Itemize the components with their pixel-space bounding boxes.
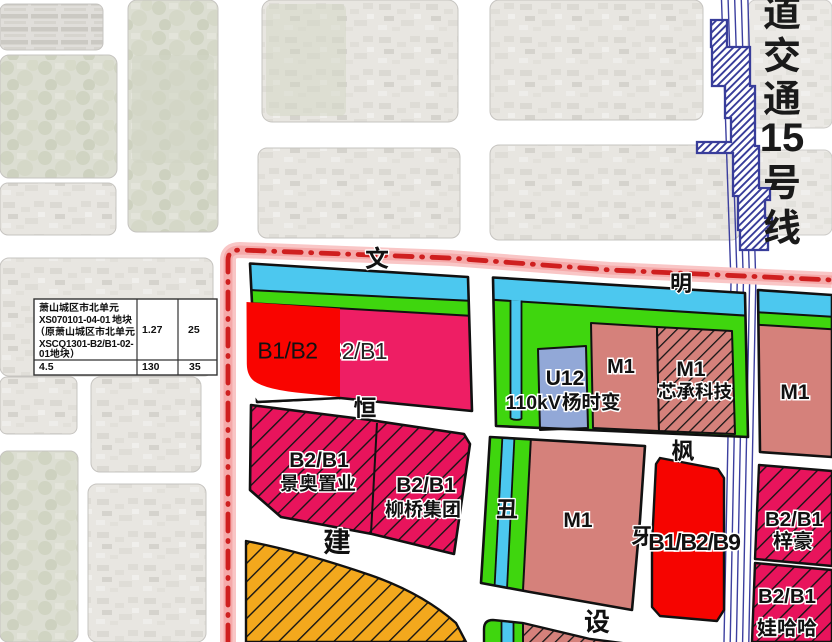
svg-text:M1: M1 bbox=[607, 356, 635, 378]
svg-text:25: 25 bbox=[188, 324, 200, 336]
svg-text:15: 15 bbox=[760, 116, 805, 160]
svg-text:B1/B2: B1/B2 bbox=[257, 338, 317, 364]
svg-text:4.5: 4.5 bbox=[39, 361, 54, 373]
svg-text:M1: M1 bbox=[780, 381, 809, 404]
svg-text:1.27: 1.27 bbox=[142, 324, 163, 336]
svg-text:M1: M1 bbox=[676, 358, 705, 381]
svg-text:B2/B1: B2/B1 bbox=[289, 449, 349, 472]
svg-text:XSCQ1301-B2/B1-02-: XSCQ1301-B2/B1-02- bbox=[39, 339, 133, 350]
svg-text:XS070101-04-01: XS070101-04-01 bbox=[39, 315, 111, 326]
svg-text:35: 35 bbox=[189, 361, 201, 373]
svg-text:110kV: 110kV bbox=[506, 392, 561, 414]
svg-text:B2/B1: B2/B1 bbox=[765, 508, 823, 531]
svg-text:B1/B2/B9: B1/B2/B9 bbox=[648, 529, 740, 555]
svg-text:B2/B1: B2/B1 bbox=[758, 585, 816, 608]
svg-text:130: 130 bbox=[142, 361, 160, 373]
svg-text:B2/B1: B2/B1 bbox=[396, 474, 456, 497]
svg-text:M1: M1 bbox=[563, 509, 592, 532]
svg-text:U12: U12 bbox=[546, 367, 585, 390]
svg-text:01: 01 bbox=[39, 349, 50, 360]
